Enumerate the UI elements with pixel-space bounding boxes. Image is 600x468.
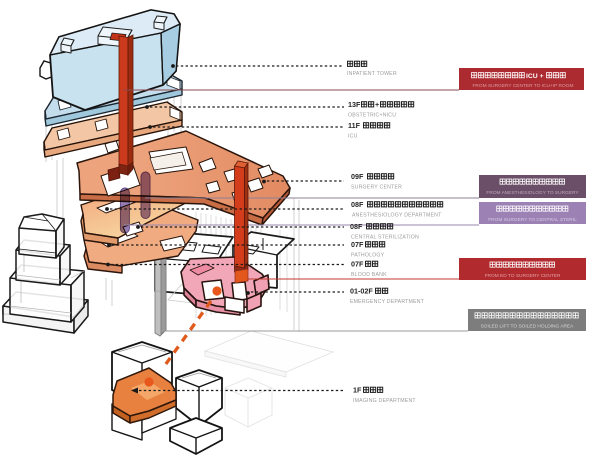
svg-text:01-02F: 01-02F xyxy=(350,287,373,296)
svg-text:07F: 07F xyxy=(351,260,364,269)
svg-text:SOILED LIFT TO SOILED HOLDING: SOILED LIFT TO SOILED HOLDING AREA xyxy=(481,324,575,330)
svg-text:08F: 08F xyxy=(350,222,363,231)
svg-text:SURGERY CENTER: SURGERY CENTER xyxy=(351,185,402,191)
svg-text:ICU +: ICU + xyxy=(526,73,544,80)
svg-text:FROM SURGERY TO CENTRAL STERIL: FROM SURGERY TO CENTRAL STERIL xyxy=(488,217,577,223)
svg-text:ICU: ICU xyxy=(348,134,358,140)
svg-text:INPATIENT TOWER: INPATIENT TOWER xyxy=(347,71,397,77)
svg-text:11F: 11F xyxy=(348,121,361,130)
svg-text:OBSTETRIC+NICU: OBSTETRIC+NICU xyxy=(348,113,396,119)
svg-text:FROM ED TO SURGERY CENTER: FROM ED TO SURGERY CENTER xyxy=(485,273,561,279)
svg-text:13F: 13F xyxy=(348,100,361,109)
svg-text:ANESTHESIOLOGY DEPARTMENT: ANESTHESIOLOGY DEPARTMENT xyxy=(352,213,442,219)
svg-text:EMERGENCY DEPARTMENT: EMERGENCY DEPARTMENT xyxy=(350,299,425,305)
svg-text:+: + xyxy=(375,100,379,109)
svg-text:BLOOD BANK: BLOOD BANK xyxy=(351,272,387,278)
svg-text:07F: 07F xyxy=(351,240,364,249)
svg-text:PATHOLOGY: PATHOLOGY xyxy=(351,253,385,259)
svg-text:08F: 08F xyxy=(351,200,364,209)
svg-text:09F: 09F xyxy=(351,172,364,181)
svg-text:IMAGING DEPARTMENT: IMAGING DEPARTMENT xyxy=(353,398,416,404)
svg-text:FROM SURGERY CENTER TO ICU+IP: FROM SURGERY CENTER TO ICU+IP ROOM xyxy=(473,83,574,89)
svg-text:FROM ANESTHESIOLOGY TO SURGERY: FROM ANESTHESIOLOGY TO SURGERY xyxy=(486,190,579,196)
svg-text:1F: 1F xyxy=(353,386,362,395)
